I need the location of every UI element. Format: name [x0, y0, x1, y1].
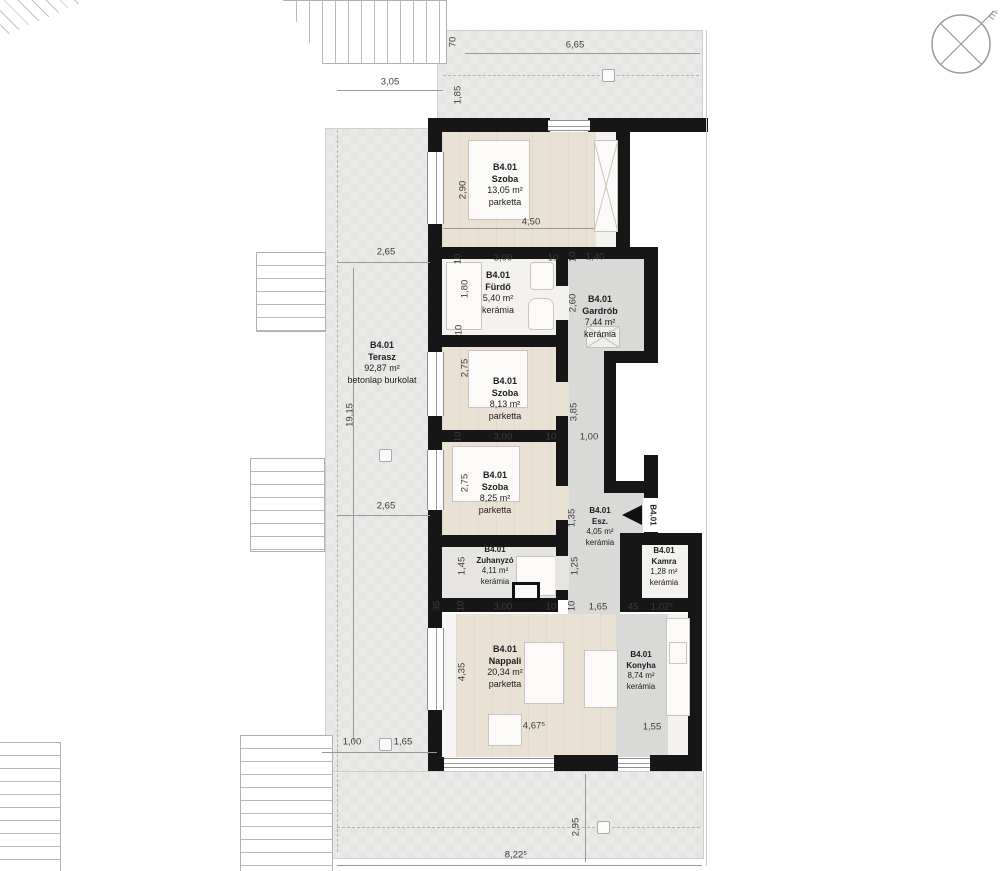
- dim-line: [337, 865, 702, 866]
- wall: [650, 755, 692, 771]
- dimension-label: 3,00: [494, 432, 513, 443]
- toilet: [528, 298, 554, 330]
- wall: [588, 118, 708, 132]
- roof-edge-line: [337, 130, 338, 852]
- dimension-label: 1,02⁵: [651, 602, 673, 613]
- stairs-left-2: [250, 458, 325, 552]
- dimension-label: 8,22⁵: [505, 850, 527, 861]
- dim-line: [322, 752, 437, 753]
- dimension-label: 2,75: [460, 474, 471, 493]
- room-label-szoba-2: B4.01Szoba 8,13 m²parketta: [489, 376, 522, 422]
- door-gap: [555, 556, 569, 590]
- kitchen-sink: [669, 642, 687, 664]
- room-label-szoba-1: B4.01Szoba 13,05 m²parketta: [487, 162, 523, 208]
- dim-line: [337, 262, 430, 263]
- dimension-label: 2,65: [377, 501, 396, 512]
- terrace-door: [427, 628, 444, 710]
- dimension-label: 1,55: [643, 722, 662, 733]
- stairs-left-1: [256, 252, 326, 332]
- dimension-label: 3,85: [569, 403, 580, 422]
- room-label-kamra: B4.01Kamra 1,28 m²kerámia: [650, 546, 678, 588]
- building-edge-line: [706, 30, 707, 866]
- dimension-label: 10: [548, 253, 559, 264]
- wall: [428, 757, 444, 771]
- roof-drain-marker: [602, 69, 615, 82]
- floor-box: [512, 582, 540, 601]
- room-label-esz: B4.01Esz. 4,05 m²kerámia: [586, 506, 614, 548]
- dimension-label: 10: [546, 432, 557, 443]
- dimension-label: 2,65: [377, 247, 396, 258]
- wardrobe-x-icon: [594, 140, 618, 232]
- dim-line: [585, 774, 586, 862]
- wall: [644, 247, 658, 363]
- dimension-label: 1,65: [589, 602, 608, 613]
- entry-arrow-icon: [622, 505, 642, 525]
- dimension-label: 70: [448, 37, 459, 48]
- dimension-label: 4,35: [457, 663, 468, 682]
- dimension-label: 10: [453, 432, 464, 443]
- sink: [530, 262, 554, 290]
- wall: [428, 118, 550, 132]
- dim-line: [465, 53, 700, 54]
- dimension-label: 4,67⁵: [523, 721, 545, 732]
- roof-drain-marker: [379, 449, 392, 462]
- dimension-label: 1,25: [570, 557, 581, 576]
- kitchen-island: [584, 650, 618, 708]
- entry-unit-label: B4.01: [649, 504, 658, 525]
- dimension-label: 1,65: [394, 737, 413, 748]
- dim-line: [443, 228, 598, 229]
- dining-table: [524, 642, 564, 704]
- room-label-nappali: B4.01Nappali 20,34 m²parketta: [487, 644, 523, 690]
- window: [427, 450, 444, 510]
- terrace-area-bottom: [325, 771, 704, 859]
- window: [548, 120, 590, 131]
- room-label-zuhanyzo: B4.01Zuhanyzó 4,11 m²kerámia: [476, 545, 513, 587]
- dimension-label: 35: [432, 601, 443, 612]
- dimension-label: 3,05: [381, 77, 400, 88]
- dim-line: [337, 90, 443, 91]
- dimension-label: 1,00: [580, 432, 599, 443]
- window: [427, 152, 444, 224]
- sofa: [488, 714, 522, 746]
- room-label-szoba-3: B4.01Szoba 8,25 m²parketta: [479, 470, 512, 516]
- dimension-label: 3,00: [494, 253, 513, 264]
- dimension-label: 3,00: [494, 602, 513, 613]
- stairs-left-3: [240, 735, 333, 871]
- stairs-top: [283, 0, 447, 64]
- wall: [616, 481, 646, 493]
- room-label-terasz: B4.01Terasz 92,87 m²betonlap burkolat: [347, 340, 416, 386]
- dimension-label: 10: [453, 254, 464, 265]
- roof-drain-marker: [379, 738, 392, 751]
- dimension-label: 1,00: [343, 737, 362, 748]
- dimension-label: 10: [454, 325, 465, 336]
- room-label-gardrob: B4.01Gardrób 7,44 m²kerámia: [582, 294, 618, 340]
- north-compass-icon: É: [925, 2, 1000, 80]
- wall: [688, 533, 702, 771]
- dimension-label: 1,85: [453, 86, 464, 105]
- dimension-label: 2,95: [571, 818, 582, 837]
- window: [427, 352, 444, 416]
- dimension-label: 10: [568, 252, 579, 263]
- dimension-label: 10: [567, 601, 578, 612]
- floor-plan: B4.01 B4.01Szoba 13,05 m²parketta B4.01F…: [0, 0, 1000, 871]
- roof-hatch-top-left: [0, 0, 88, 38]
- dimension-label: 45: [628, 602, 639, 613]
- dimension-label: 1,45: [457, 557, 468, 576]
- wall: [428, 335, 556, 347]
- nappali-window-strip: [442, 614, 456, 757]
- dimension-label: 2,60: [568, 294, 579, 313]
- dimension-label: 1,35: [567, 509, 578, 528]
- dim-line: [337, 515, 430, 516]
- roof-edge-line: [337, 827, 700, 828]
- dimension-label: 4,50: [522, 217, 541, 228]
- stairs-bottom-left: [0, 742, 61, 871]
- room-label-konyha: B4.01Konyha 8,74 m²kerámia: [626, 650, 655, 692]
- dimension-label: 1,40: [586, 252, 605, 263]
- door-gap: [555, 382, 569, 416]
- roof-edge-line: [443, 75, 699, 76]
- dimension-label: 10: [456, 601, 467, 612]
- north-label: É: [986, 8, 999, 23]
- dimension-label: 10: [546, 602, 557, 613]
- roof-drain-marker: [597, 821, 610, 834]
- kitchen-counter: [666, 618, 690, 716]
- wall: [428, 430, 556, 442]
- dimension-label: 2,75: [460, 359, 471, 378]
- wall: [616, 132, 630, 259]
- dimension-label: 2,90: [458, 181, 469, 200]
- wall: [620, 533, 642, 600]
- dimension-label: 6,65: [566, 40, 585, 51]
- dimension-label: 1,80: [460, 280, 471, 299]
- dimension-label: 19,15: [345, 403, 356, 427]
- room-label-furdo: B4.01Fürdő 5,40 m²kerámia: [482, 270, 514, 316]
- wall: [554, 755, 618, 771]
- wall: [604, 351, 616, 493]
